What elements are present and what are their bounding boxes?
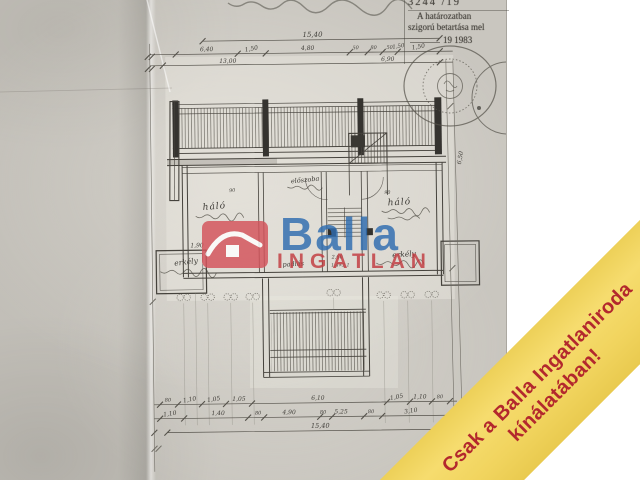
shrub-symbols	[177, 288, 438, 301]
dimension-label: 6,90	[381, 56, 395, 63]
dimension-label: 6,10	[311, 395, 325, 402]
dimension-label: 15,40	[302, 31, 323, 39]
dimension-label: 4,80	[300, 45, 315, 52]
dimension-label: 5,25	[334, 408, 348, 415]
official-stamp-text: 3244 /19 A határozatban szigorú betartás…	[404, 0, 509, 64]
dimension-label: 80	[437, 394, 444, 400]
terrace-stair	[262, 277, 369, 377]
room-label-balcony-left: erkély	[174, 256, 199, 268]
dimension-label: 80	[370, 45, 377, 51]
dimension-label: 80	[255, 410, 262, 416]
dimension-label: 1,05	[389, 393, 404, 402]
paper-crease	[0, 88, 172, 92]
dimension-label: 13,00	[219, 58, 236, 65]
dimension-label: 1,10	[182, 395, 197, 404]
dimension-label: 1,50	[244, 44, 259, 53]
stamp-year: 19 1983	[443, 35, 472, 45]
stamp-line: A határozatban	[408, 11, 509, 23]
blank-line	[410, 34, 440, 43]
dimension-label: 50	[352, 45, 359, 51]
dimension-label: 90	[384, 190, 390, 196]
dimension-label: 1,10	[163, 410, 177, 419]
dimension-label: 6,40	[200, 46, 214, 53]
dimension-label: 80	[165, 398, 172, 404]
handwritten-title-illegible	[228, 0, 412, 15]
dimension-label: 4,90	[281, 409, 296, 416]
watermark-subbrand-text: INGATLAN	[277, 250, 432, 274]
dimension-label: 1,05	[232, 396, 246, 403]
dimension-label: 80	[320, 410, 327, 416]
dimension-label: 1,10	[413, 393, 427, 400]
balustrade-band	[172, 97, 442, 157]
dimension-label: 80	[368, 409, 375, 415]
room-label-bedroom-left: háló	[202, 200, 226, 213]
dimension-label: 3,10	[404, 407, 418, 416]
dimension-label: 15,40	[311, 422, 330, 430]
dimension-label: 6,50	[456, 150, 465, 164]
scanned-floorplan-photo: 15,40 6,40 1,50 4,80 50 80 50 1,50 13,00…	[0, 0, 640, 480]
balla-logo-icon	[202, 221, 268, 268]
registry-number: 3244 /19	[408, 0, 509, 11]
dimension-label: 90	[229, 187, 236, 194]
balla-watermark: Balla INGATLAN	[200, 217, 460, 277]
stamp-line: szigorú betartása mel	[408, 22, 509, 34]
dimension-label: 1,40	[211, 410, 225, 417]
dimension-label: 1,05	[207, 395, 221, 404]
stamp-date-line: 19 1983	[408, 34, 509, 47]
room-label-hall: előszoba	[290, 174, 319, 186]
